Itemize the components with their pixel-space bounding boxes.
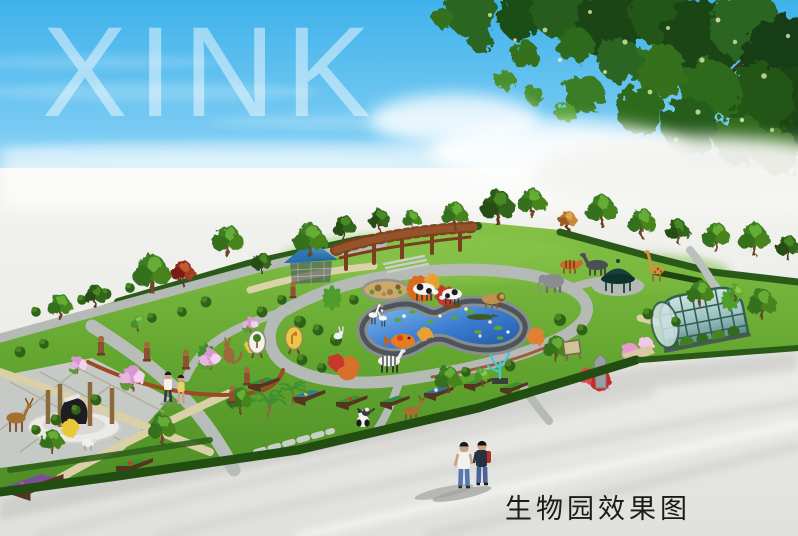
bust-statue: [97, 336, 105, 356]
bust-statue: [228, 386, 235, 404]
caption-title: 生物园效果图: [505, 494, 691, 525]
bust-statue: [243, 367, 251, 386]
xink-watermark: XINK: [42, 1, 381, 144]
biology-garden-rendering: XINK: [0, 0, 798, 536]
bust-statue: [143, 342, 151, 362]
rock-mound: [363, 280, 409, 300]
rendering-canvas: XINK: [0, 0, 798, 536]
bust-statue: [182, 350, 190, 370]
bust-statue: [290, 282, 297, 299]
